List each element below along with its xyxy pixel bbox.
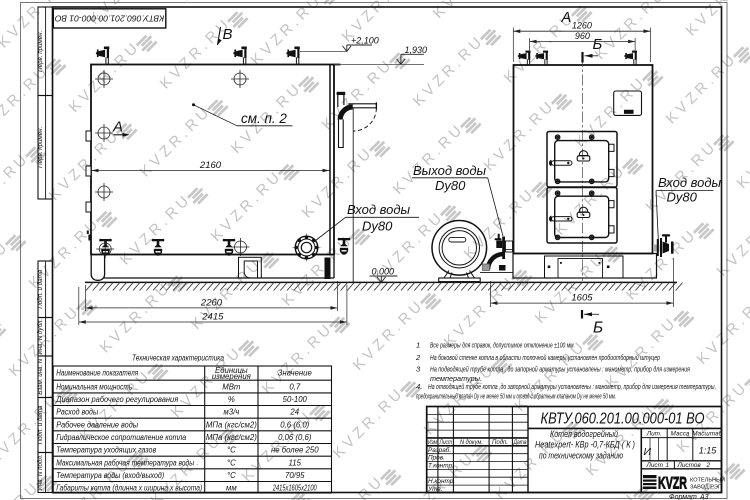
svg-text:А: А: [112, 119, 123, 136]
svg-text:КОТЕЛЬНЫЙ: КОТЕЛЬНЫЙ: [690, 476, 725, 484]
svg-text:Температура воды (вход/выход): Температура воды (вход/выход): [56, 471, 164, 480]
svg-text:Инв. N дубл.: Инв. N дубл.: [37, 319, 44, 355]
svg-text:+2,100: +2,100: [351, 36, 379, 46]
svg-text:°С: °С: [227, 471, 236, 480]
svg-text:Heatexpert- КВр -0,7-КБД ( К ): Heatexpert- КВр -0,7-КБД ( К ): [535, 440, 635, 450]
svg-text:по техническому заданию: по техническому заданию: [539, 451, 623, 461]
svg-text:Максимальная рабочая температу: Максимальная рабочая температура воды: [56, 458, 194, 467]
svg-text:0,06 (0,6): 0,06 (0,6): [278, 433, 312, 442]
svg-text:0,7: 0,7: [289, 382, 301, 391]
svg-text:Габариты котла (длинна х ширин: Габариты котла (длинна х ширина х высота…: [56, 484, 202, 493]
svg-text:2415: 2415: [201, 312, 224, 323]
svg-text:В: В: [223, 26, 233, 43]
svg-text:24: 24: [289, 408, 299, 417]
svg-text:Изм: Изм: [428, 439, 437, 446]
svg-text:Лит.: Лит.: [646, 430, 662, 437]
svg-text:Дата: Дата: [513, 439, 527, 446]
svg-text:см. п. 2: см. п. 2: [241, 111, 287, 126]
svg-text:МПа (кгс/см2): МПа (кгс/см2): [206, 433, 257, 442]
svg-text:МПа (кгс/см2): МПа (кгс/см2): [206, 420, 257, 429]
svg-text:Лист: Лист: [439, 439, 453, 446]
svg-text:50-100: 50-100: [283, 395, 308, 404]
svg-text:Б: Б: [593, 36, 603, 53]
svg-text:Перв. примен.: Перв. примен.: [37, 127, 44, 168]
svg-text:1:15: 1:15: [699, 446, 718, 456]
svg-text:Значение: Значение: [278, 369, 313, 378]
svg-text:1,930: 1,930: [405, 45, 428, 55]
svg-text:Dy80: Dy80: [435, 178, 466, 193]
svg-text:0,6 (6,0): 0,6 (6,0): [280, 420, 309, 429]
svg-text:Лист: Лист: [646, 462, 664, 469]
svg-text:Б: Б: [593, 320, 603, 337]
svg-text:960: 960: [575, 31, 590, 41]
svg-text:Т.контр.: Т.контр.: [428, 463, 454, 470]
svg-text:Масштаб: Масштаб: [692, 429, 722, 437]
svg-text:И: И: [644, 446, 652, 458]
svg-text:предохранительный клапан Dу н: предохранительный клапан Dу не менее 50 …: [416, 392, 616, 401]
svg-text:115: 115: [289, 458, 302, 467]
svg-text:70/95: 70/95: [285, 471, 305, 480]
svg-text:ЗАВОД РЭП: ЗАВОД РЭП: [690, 485, 722, 491]
svg-text:Листов: Листов: [677, 462, 702, 469]
svg-text:°С: °С: [227, 458, 236, 467]
svg-text:Наименование показателя: Наименование показателя: [56, 369, 139, 378]
svg-text:Диапазон рабочего регулировани: Диапазон рабочего регулирования: [55, 395, 179, 404]
svg-text:Гидравлическое сопротивление к: Гидравлическое сопротивление котла: [56, 433, 187, 442]
svg-text:МВт: МВт: [222, 382, 241, 391]
svg-text:Dy80: Dy80: [667, 190, 698, 205]
svg-text:Перв. примен.: Перв. примен.: [37, 31, 44, 72]
svg-text:2415х1605х2100: 2415х1605х2100: [272, 484, 317, 493]
svg-text:1260: 1260: [572, 21, 592, 31]
svg-text:Котел водогрейный: Котел водогрейный: [550, 429, 618, 439]
svg-text:Утв.: Утв.: [427, 486, 443, 493]
svg-text:На подводящей трубе котла ,: На подводящей трубе котла , до запорной …: [430, 365, 690, 374]
svg-text:KVZR: KVZR: [658, 474, 687, 493]
svg-text:°С: °С: [227, 446, 236, 455]
svg-text:Выход воды: Выход воды: [413, 163, 487, 178]
svg-text:%: %: [228, 395, 235, 404]
svg-text:Все размеры для справок, допус: Все размеры для справок, допустимое откл…: [430, 341, 575, 350]
svg-text:м3/ч: м3/ч: [223, 408, 239, 417]
svg-text:Температура уходящих газов: Температура уходящих газов: [56, 446, 156, 455]
svg-text:Инв. N подл.: Инв. N подл.: [37, 454, 44, 490]
svg-text:Подп. и дата: Подп. и дата: [37, 269, 44, 308]
svg-text:Рабочее давление воды: Рабочее давление воды: [56, 420, 138, 429]
svg-text:КВТУ.060.201.00.000-01 ВО: КВТУ.060.201.00.000-01 ВО: [54, 13, 164, 23]
svg-text:Dy80: Dy80: [362, 219, 393, 234]
svg-text:2: 2: [706, 462, 711, 469]
svg-text:2: 2: [415, 353, 421, 362]
svg-text:Подп.: Подп.: [492, 438, 508, 446]
svg-text:Номинальная мощность: Номинальная мощность: [56, 382, 132, 391]
svg-text:Техническая характеристика: Техническая характеристика: [132, 354, 224, 363]
svg-text:Взам. инв. N: Взам. инв. N: [37, 358, 44, 395]
svg-text:1: 1: [416, 341, 420, 350]
svg-text:1605: 1605: [571, 293, 593, 304]
svg-text:Масса: Масса: [671, 430, 690, 437]
svg-text:4.: 4.: [416, 382, 422, 391]
svg-text:2160: 2160: [199, 160, 222, 171]
svg-text:Разраб.: Разраб.: [428, 446, 451, 454]
svg-text:Расход воды: Расход воды: [56, 408, 98, 417]
svg-text:Пров.: Пров.: [428, 455, 445, 462]
svg-text:измерения: измерения: [212, 372, 252, 381]
svg-text:2260: 2260: [200, 297, 223, 308]
svg-text:КВТУ.060.201.00.000-01 ВО: КВТУ.060.201.00.000-01 ВО: [541, 411, 705, 428]
svg-text:0.000: 0.000: [372, 267, 395, 277]
svg-text:Вход воды: Вход воды: [347, 202, 411, 217]
svg-text:На отводящей трубе котла ,до з: На отводящей трубе котла ,до запорной ар…: [428, 382, 716, 391]
svg-text:Подп. и дата: Подп. и дата: [37, 405, 44, 444]
svg-text:Н.контр.: Н.контр.: [428, 478, 455, 485]
svg-text:1: 1: [666, 462, 670, 469]
svg-text:Формат: Формат: [669, 494, 697, 500]
svg-text:N докум.: N докум.: [460, 438, 483, 446]
svg-text:А3: А3: [699, 494, 709, 500]
svg-text:На боковой стенке котла в обла: На боковой стенке котла в области топочн…: [430, 353, 660, 362]
svg-text:Вход воды: Вход воды: [658, 175, 722, 190]
svg-text:не более 250: не более 250: [271, 446, 319, 455]
svg-text:А: А: [561, 10, 572, 26]
svg-text:мм: мм: [226, 484, 237, 493]
